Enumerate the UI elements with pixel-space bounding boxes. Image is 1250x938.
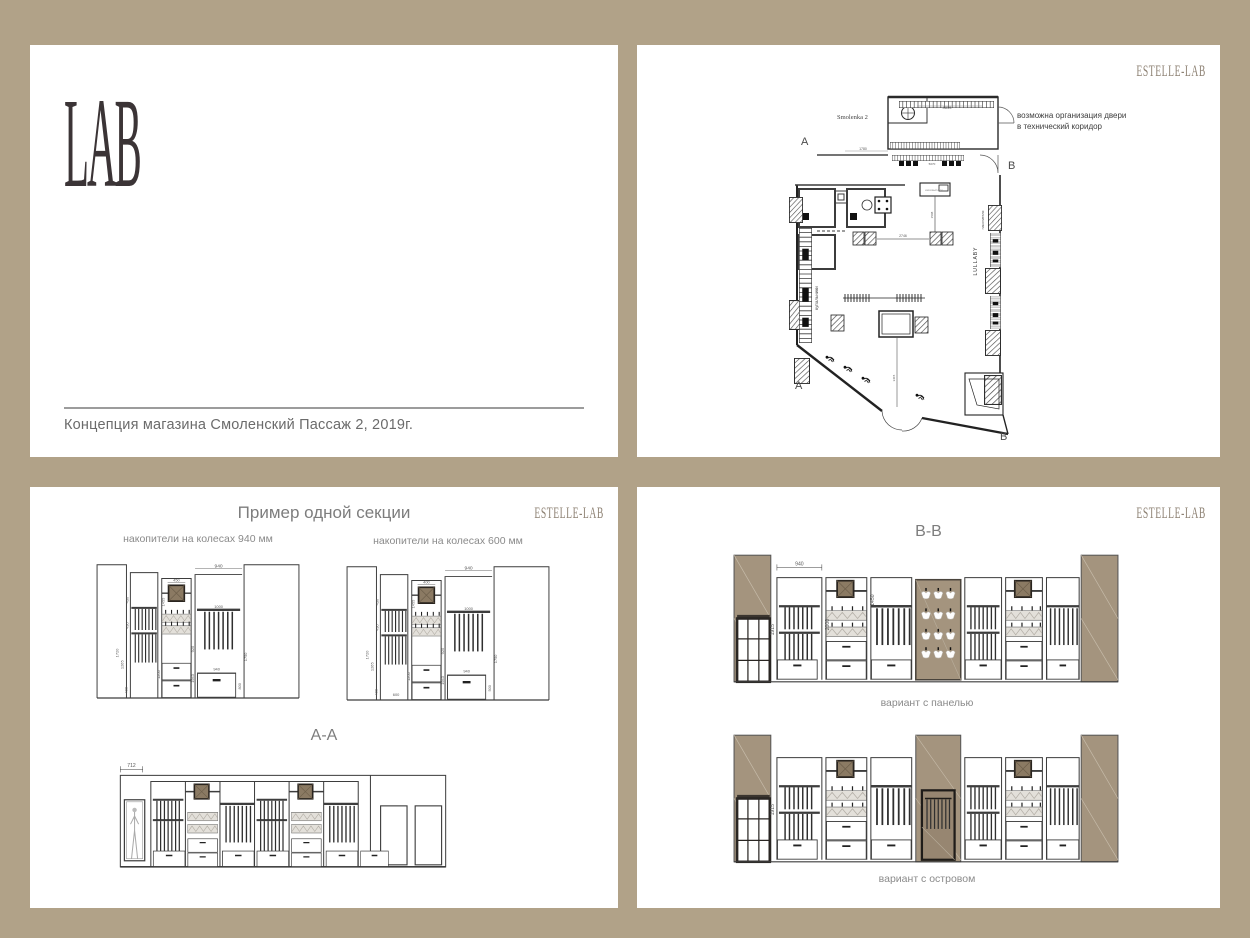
svg-text:1508: 1508 — [930, 211, 934, 218]
svg-text:3415: 3415 — [892, 374, 896, 381]
variant-940-label: накопители на колесах 940 мм — [95, 533, 301, 545]
svg-text:2746: 2746 — [899, 234, 907, 238]
estelle-lab-logo: ESTELLE-LAB — [1136, 63, 1206, 81]
estelle-lab-logo: ESTELLE-LAB — [1136, 505, 1206, 523]
floor-plan-drawing: 4835 1780 5070 — [787, 93, 1037, 443]
table-dice — [875, 197, 891, 213]
mannequin-icon — [916, 394, 924, 400]
bra-panel — [916, 580, 961, 680]
svg-text:1780: 1780 — [859, 147, 867, 151]
sections-slide: ESTELLE-LAB Пример одной секции накопите… — [30, 487, 618, 908]
svg-text:1000: 1000 — [214, 604, 224, 609]
svg-text:400: 400 — [423, 579, 430, 584]
plan-annotation: возможна организация двери в технический… — [1017, 111, 1217, 133]
left-wall-fixtures — [799, 228, 812, 342]
marker-b-bottom: В — [1000, 431, 1007, 443]
island-rack — [922, 790, 955, 859]
svg-text:1943: 1943 — [190, 674, 195, 683]
right-wall-fixtures — [990, 296, 1001, 329]
aa-elevation-drawing: 712 — [110, 753, 456, 875]
panel-variant-label: вариант с панелью — [732, 697, 1122, 709]
section-drawing-600: 940 400 1455 1000 430 430 1720 1265 400 … — [345, 555, 551, 702]
svg-text:920: 920 — [190, 645, 195, 652]
svg-text:1720: 1720 — [115, 648, 120, 658]
svg-text:1200: 1200 — [406, 671, 411, 681]
mirror-mannequin — [124, 800, 144, 861]
bb-section-title: В-В — [637, 523, 1220, 541]
cover-caption: Концепция магазина Смоленский Пассаж 2, … — [64, 417, 413, 433]
cover-slide: LAB Концепция магазина Смоленский Пассаж… — [30, 45, 618, 457]
svg-text:кассовый стол: кассовый стол — [925, 188, 943, 192]
svg-text:430: 430 — [374, 623, 379, 630]
right-wall-fixtures — [990, 233, 1001, 267]
floor-plan-slide: ESTELLE-LAB возможна организация двери в… — [637, 45, 1220, 457]
mannequin-icon — [844, 366, 852, 372]
shelving-strip — [890, 142, 960, 149]
svg-text:500: 500 — [487, 684, 492, 691]
bb-slide: ESTELLE-LAB В-В — [637, 487, 1220, 908]
bb-panel-elevation: 940 1915 2000 1450 — [732, 553, 1120, 684]
window-grid — [737, 616, 770, 681]
mannequin-icon — [862, 377, 870, 383]
cash-desk: кассовый стол 1508 — [920, 183, 950, 232]
variant-600-label: накопители на колесах 600 мм — [345, 535, 551, 547]
svg-text:1450: 1450 — [870, 594, 876, 605]
svg-text:купальники: купальники — [814, 286, 819, 310]
svg-text:430: 430 — [374, 598, 379, 605]
aa-section-title: А-А — [30, 727, 618, 745]
garment-racks — [843, 294, 925, 302]
svg-text:430: 430 — [124, 621, 129, 628]
svg-text:400: 400 — [373, 688, 378, 695]
svg-text:1000: 1000 — [464, 606, 474, 611]
svg-text:1750: 1750 — [493, 654, 498, 664]
svg-text:LULLABY: LULLABY — [973, 247, 979, 276]
lab-logo: LAB — [64, 79, 140, 207]
svg-text:5070: 5070 — [929, 162, 936, 166]
svg-text:400: 400 — [123, 686, 128, 693]
mannequin-icon — [826, 356, 834, 362]
plan-title: Smolenka 2 — [837, 114, 868, 121]
center-island — [879, 311, 913, 337]
entrance-doors — [882, 411, 922, 431]
window-grid — [737, 796, 770, 861]
cover-divider-line — [64, 407, 584, 409]
svg-text:1915: 1915 — [770, 804, 776, 815]
svg-text:накопители: накопители — [981, 211, 985, 230]
svg-text:940: 940 — [214, 564, 222, 570]
sections-title: Пример одной секции — [30, 503, 618, 523]
svg-text:2000: 2000 — [825, 619, 831, 630]
svg-text:1720: 1720 — [365, 650, 370, 660]
marker-b-top: В — [1008, 160, 1015, 172]
marker-a-top: А — [801, 136, 809, 148]
svg-text:1915: 1915 — [770, 624, 776, 635]
svg-text:940: 940 — [463, 669, 470, 674]
svg-text:4835: 4835 — [943, 105, 953, 110]
marker-a-bottom: А — [795, 380, 803, 392]
svg-text:1750: 1750 — [243, 652, 248, 662]
svg-text:800: 800 — [237, 682, 242, 689]
svg-text:940: 940 — [213, 667, 220, 672]
svg-text:450: 450 — [173, 577, 180, 582]
svg-text:1943: 1943 — [440, 676, 445, 685]
bb-island-elevation: 1915 — [732, 733, 1120, 864]
svg-text:600: 600 — [393, 692, 400, 697]
svg-text:940: 940 — [464, 566, 472, 572]
svg-text:1200: 1200 — [156, 669, 161, 679]
island-variant-label: вариант с островом — [732, 873, 1122, 885]
section-drawing-940: 940 450 1455 1000 430 430 1720 1265 400 … — [95, 553, 301, 700]
svg-text:920: 920 — [440, 647, 445, 654]
svg-text:1265: 1265 — [370, 662, 375, 672]
svg-text:1265: 1265 — [120, 660, 125, 670]
svg-text:1455: 1455 — [161, 597, 166, 607]
svg-text:430: 430 — [124, 596, 129, 603]
shelving-strip — [892, 155, 964, 161]
svg-text:712: 712 — [127, 763, 136, 769]
svg-text:1455: 1455 — [411, 599, 416, 609]
svg-text:940: 940 — [795, 561, 804, 567]
